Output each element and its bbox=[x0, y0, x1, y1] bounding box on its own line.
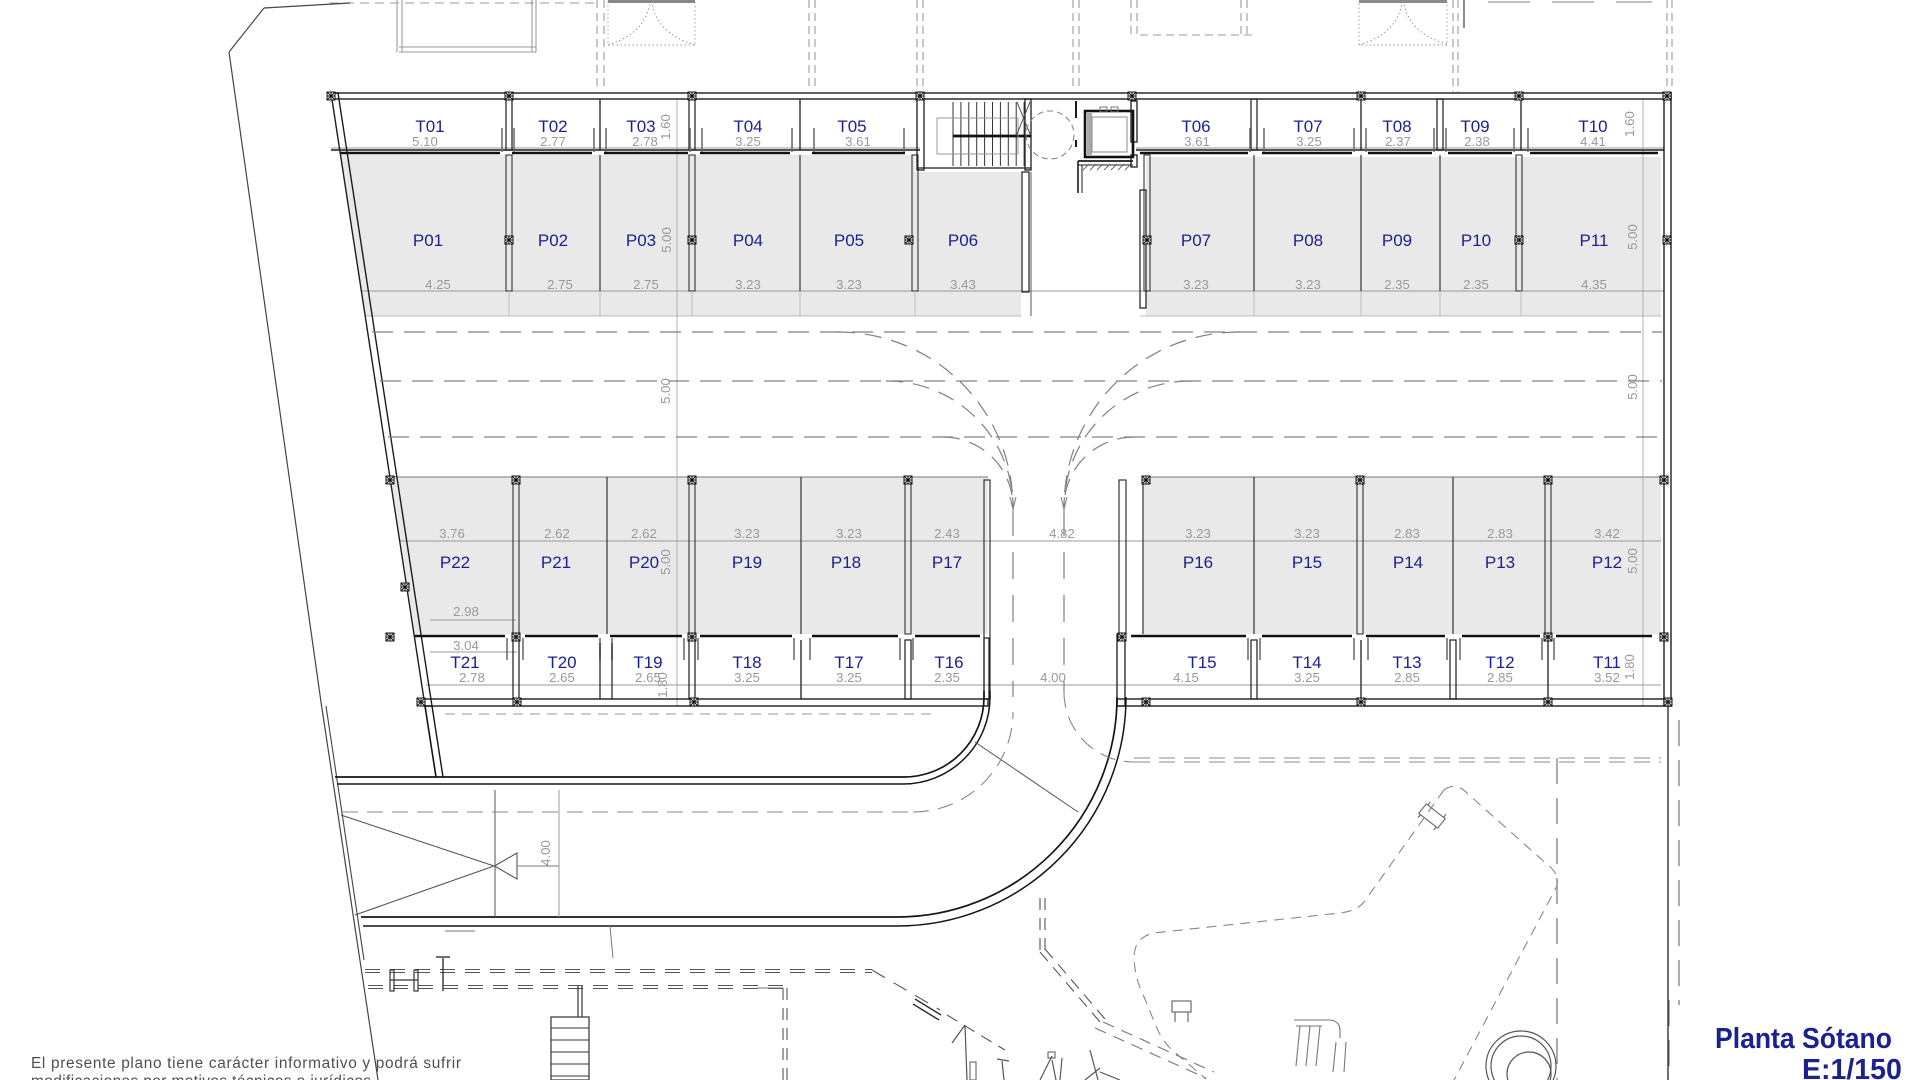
svg-text:2.43: 2.43 bbox=[934, 526, 960, 541]
svg-text:5.00: 5.00 bbox=[659, 227, 674, 253]
svg-text:3.23: 3.23 bbox=[1183, 277, 1209, 292]
svg-text:3.23: 3.23 bbox=[836, 526, 862, 541]
svg-text:5.00: 5.00 bbox=[1625, 548, 1640, 574]
svg-text:4.82: 4.82 bbox=[1049, 526, 1075, 541]
svg-text:4.41: 4.41 bbox=[1580, 134, 1606, 149]
svg-text:modificaciones por motivos téc: modificaciones por motivos técnicos o ju… bbox=[31, 1073, 371, 1080]
svg-text:3.23: 3.23 bbox=[1294, 526, 1320, 541]
svg-text:5.00: 5.00 bbox=[1625, 224, 1640, 250]
svg-text:2.83: 2.83 bbox=[1394, 526, 1420, 541]
svg-text:3.23: 3.23 bbox=[734, 526, 760, 541]
svg-text:2.75: 2.75 bbox=[547, 277, 573, 292]
svg-text:P09: P09 bbox=[1382, 231, 1412, 250]
svg-text:3.25: 3.25 bbox=[735, 134, 761, 149]
svg-text:2.75: 2.75 bbox=[633, 277, 659, 292]
svg-text:3.43: 3.43 bbox=[950, 277, 976, 292]
svg-text:3.25: 3.25 bbox=[1296, 134, 1322, 149]
svg-text:3.23: 3.23 bbox=[1185, 526, 1211, 541]
svg-text:5.00: 5.00 bbox=[658, 549, 673, 575]
svg-text:2.62: 2.62 bbox=[631, 526, 657, 541]
svg-text:3.04: 3.04 bbox=[453, 638, 479, 653]
svg-text:P08: P08 bbox=[1293, 231, 1323, 250]
svg-text:P02: P02 bbox=[538, 231, 568, 250]
svg-text:4.25: 4.25 bbox=[425, 277, 451, 292]
svg-text:P13: P13 bbox=[1485, 553, 1515, 572]
svg-text:P04: P04 bbox=[733, 231, 763, 250]
svg-text:E:1/150: E:1/150 bbox=[1802, 1054, 1902, 1080]
svg-text:3.76: 3.76 bbox=[439, 526, 465, 541]
svg-text:P15: P15 bbox=[1292, 553, 1322, 572]
svg-text:P14: P14 bbox=[1393, 553, 1423, 572]
svg-text:P18: P18 bbox=[831, 553, 861, 572]
svg-text:3.52: 3.52 bbox=[1594, 670, 1620, 685]
svg-text:3.25: 3.25 bbox=[1294, 670, 1320, 685]
svg-text:1.80: 1.80 bbox=[1622, 654, 1637, 680]
svg-text:P16: P16 bbox=[1183, 553, 1213, 572]
svg-text:2.85: 2.85 bbox=[1487, 670, 1513, 685]
svg-text:P01: P01 bbox=[413, 231, 443, 250]
svg-text:El presente plano tiene caráct: El presente plano tiene carácter informa… bbox=[31, 1055, 461, 1072]
svg-text:3.61: 3.61 bbox=[1184, 134, 1210, 149]
svg-text:P03: P03 bbox=[626, 231, 656, 250]
svg-text:4.00: 4.00 bbox=[538, 840, 553, 866]
svg-text:P06: P06 bbox=[948, 231, 978, 250]
svg-text:2.38: 2.38 bbox=[1464, 134, 1490, 149]
svg-text:2.35: 2.35 bbox=[1463, 277, 1489, 292]
svg-text:3.25: 3.25 bbox=[734, 670, 760, 685]
svg-text:4.00: 4.00 bbox=[1040, 670, 1066, 685]
svg-text:2.83: 2.83 bbox=[1487, 526, 1513, 541]
svg-text:3.23: 3.23 bbox=[735, 277, 761, 292]
svg-text:2.65: 2.65 bbox=[549, 670, 575, 685]
svg-text:4.15: 4.15 bbox=[1173, 670, 1199, 685]
svg-text:4.35: 4.35 bbox=[1581, 277, 1607, 292]
svg-text:3.61: 3.61 bbox=[845, 134, 871, 149]
svg-text:3.23: 3.23 bbox=[1295, 277, 1321, 292]
svg-text:2.78: 2.78 bbox=[459, 670, 485, 685]
svg-text:5.00: 5.00 bbox=[1625, 374, 1640, 400]
svg-text:5.10: 5.10 bbox=[412, 134, 438, 149]
svg-text:P10: P10 bbox=[1461, 231, 1491, 250]
svg-text:1.80: 1.80 bbox=[655, 672, 670, 698]
svg-text:P20: P20 bbox=[629, 553, 659, 572]
svg-text:2.35: 2.35 bbox=[1384, 277, 1410, 292]
svg-text:P05: P05 bbox=[834, 231, 864, 250]
svg-text:2.98: 2.98 bbox=[453, 604, 479, 619]
svg-text:3.23: 3.23 bbox=[836, 277, 862, 292]
svg-text:P17: P17 bbox=[932, 553, 962, 572]
svg-text:P19: P19 bbox=[732, 553, 762, 572]
svg-text:1.60: 1.60 bbox=[1622, 111, 1637, 137]
svg-text:5.00: 5.00 bbox=[658, 378, 673, 404]
svg-text:2.78: 2.78 bbox=[632, 134, 658, 149]
svg-text:Planta Sótano: Planta Sótano bbox=[1715, 1023, 1892, 1055]
svg-text:2.62: 2.62 bbox=[544, 526, 570, 541]
svg-text:2.37: 2.37 bbox=[1385, 134, 1411, 149]
svg-text:P22: P22 bbox=[440, 553, 470, 572]
svg-text:1.60: 1.60 bbox=[658, 114, 673, 140]
svg-text:3.42: 3.42 bbox=[1594, 526, 1620, 541]
svg-text:P21: P21 bbox=[541, 553, 571, 572]
svg-text:2.35: 2.35 bbox=[934, 670, 960, 685]
svg-text:2.77: 2.77 bbox=[540, 134, 566, 149]
svg-text:2.85: 2.85 bbox=[1394, 670, 1420, 685]
svg-text:P07: P07 bbox=[1181, 231, 1211, 250]
svg-text:3.25: 3.25 bbox=[836, 670, 862, 685]
svg-text:P12: P12 bbox=[1592, 553, 1622, 572]
svg-text:P11: P11 bbox=[1580, 231, 1609, 250]
